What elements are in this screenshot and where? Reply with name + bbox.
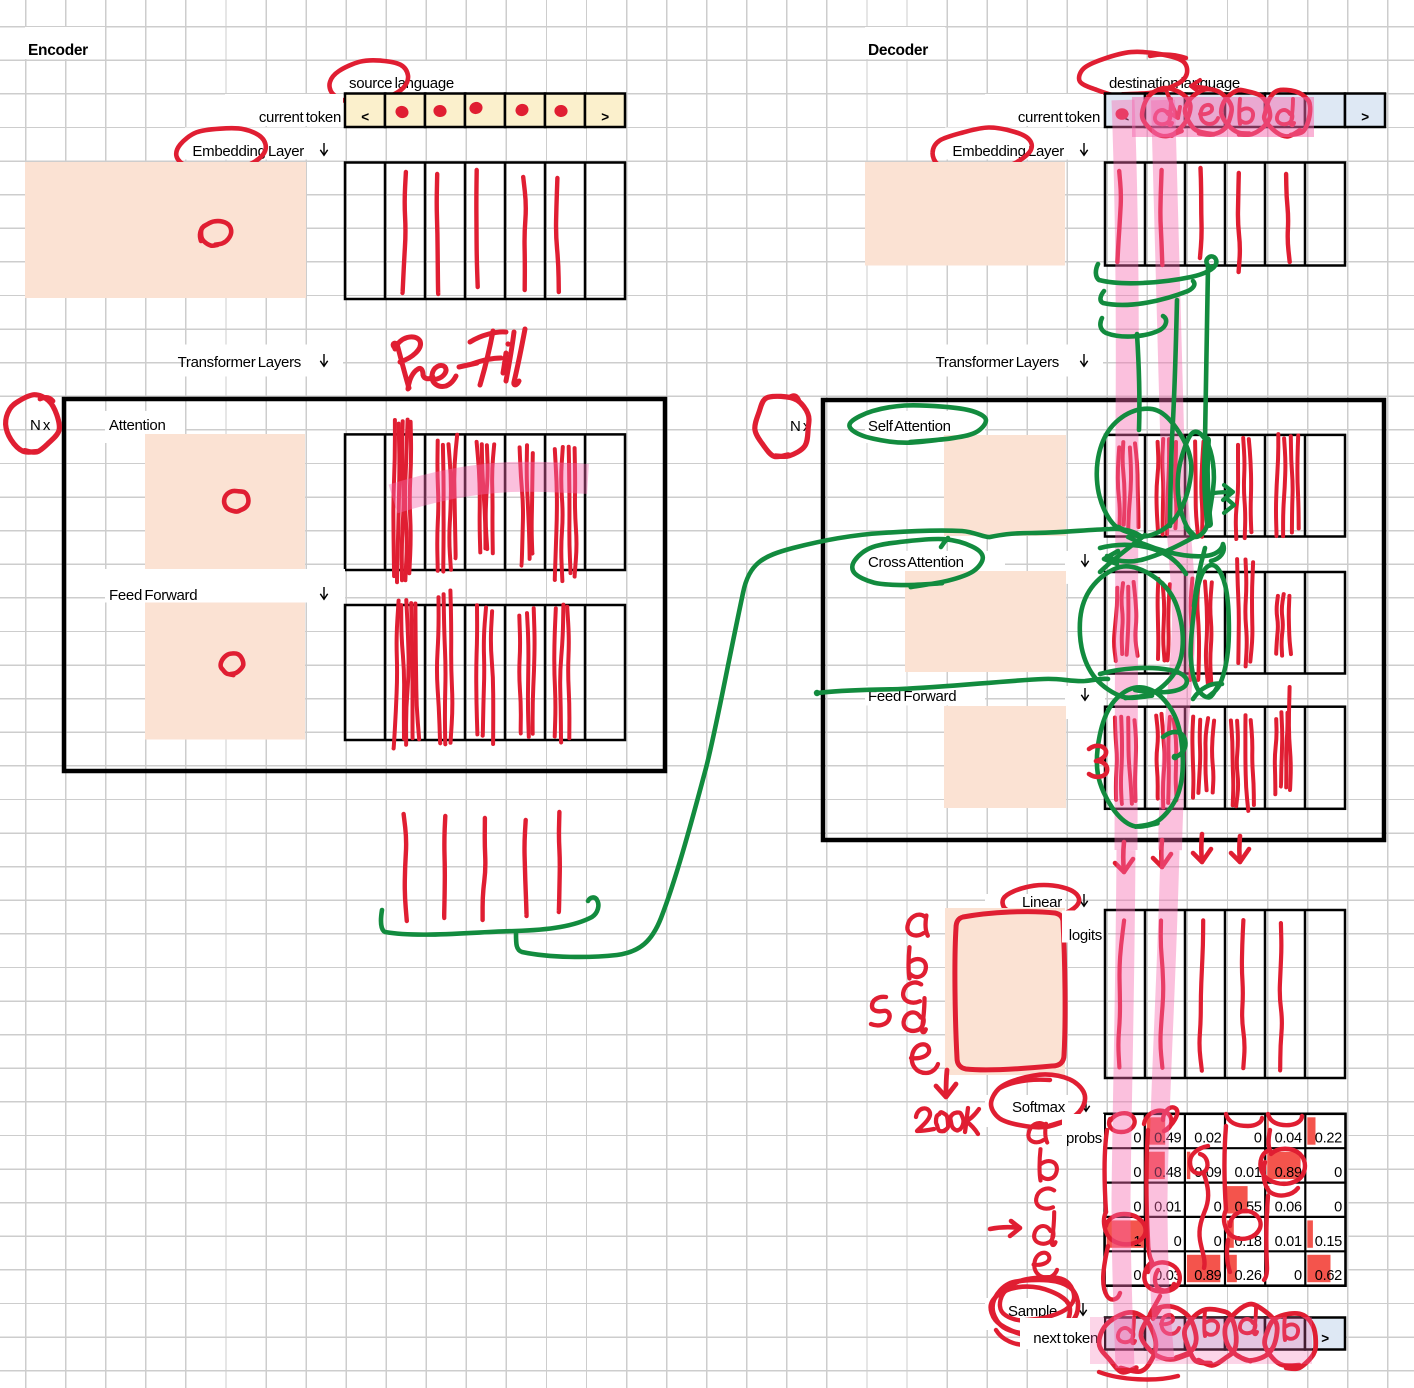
svg-text:probs: probs xyxy=(1066,1130,1102,1147)
svg-text:current token: current token xyxy=(259,109,341,126)
svg-text:0: 0 xyxy=(1133,1199,1141,1215)
svg-text:0.01: 0.01 xyxy=(1234,1165,1261,1181)
svg-text:0: 0 xyxy=(1214,1234,1222,1250)
svg-text:0: 0 xyxy=(1133,1165,1141,1181)
svg-text:0: 0 xyxy=(1294,1268,1302,1284)
svg-text:logits: logits xyxy=(1069,927,1102,944)
svg-text:Transformer Layers: Transformer Layers xyxy=(178,354,301,371)
svg-text:0: 0 xyxy=(1214,1199,1222,1215)
svg-text:0: 0 xyxy=(1133,1131,1141,1147)
svg-text:0.06: 0.06 xyxy=(1275,1199,1302,1215)
svg-text:<: < xyxy=(361,110,369,125)
svg-text:Embedding Layer: Embedding Layer xyxy=(192,143,304,160)
svg-text:Feed Forward: Feed Forward xyxy=(109,587,197,604)
svg-text:Transformer Layers: Transformer Layers xyxy=(936,354,1059,371)
svg-text:>: > xyxy=(601,110,609,125)
svg-text:0.04: 0.04 xyxy=(1275,1131,1302,1147)
svg-text:0.89: 0.89 xyxy=(1194,1268,1221,1284)
svg-text:>: > xyxy=(1321,1331,1329,1346)
svg-text:Embedding Layer: Embedding Layer xyxy=(952,143,1064,160)
svg-text:0.22: 0.22 xyxy=(1315,1131,1342,1147)
svg-text:Self Attention: Self Attention xyxy=(868,418,951,435)
svg-text:Decoder: Decoder xyxy=(868,42,928,59)
svg-text:0.62: 0.62 xyxy=(1315,1268,1342,1284)
svg-text:>: > xyxy=(1361,110,1369,125)
svg-text:Attention: Attention xyxy=(109,417,166,434)
svg-text:0: 0 xyxy=(1254,1131,1262,1147)
svg-text:0: 0 xyxy=(1174,1234,1182,1250)
svg-text:current token: current token xyxy=(1018,109,1100,126)
svg-text:0.15: 0.15 xyxy=(1315,1234,1342,1250)
svg-text:N x: N x xyxy=(30,417,51,434)
svg-text:0.01: 0.01 xyxy=(1275,1234,1302,1250)
svg-text:0: 0 xyxy=(1334,1199,1342,1215)
svg-text:Softmax: Softmax xyxy=(1012,1099,1066,1116)
svg-text:next token: next token xyxy=(1033,1330,1098,1347)
svg-text:Encoder: Encoder xyxy=(28,42,88,59)
svg-text:Cross Attention: Cross Attention xyxy=(868,554,964,571)
svg-text:0.26: 0.26 xyxy=(1234,1268,1261,1284)
svg-text:0: 0 xyxy=(1334,1165,1342,1181)
svg-text:0: 0 xyxy=(1133,1268,1141,1284)
